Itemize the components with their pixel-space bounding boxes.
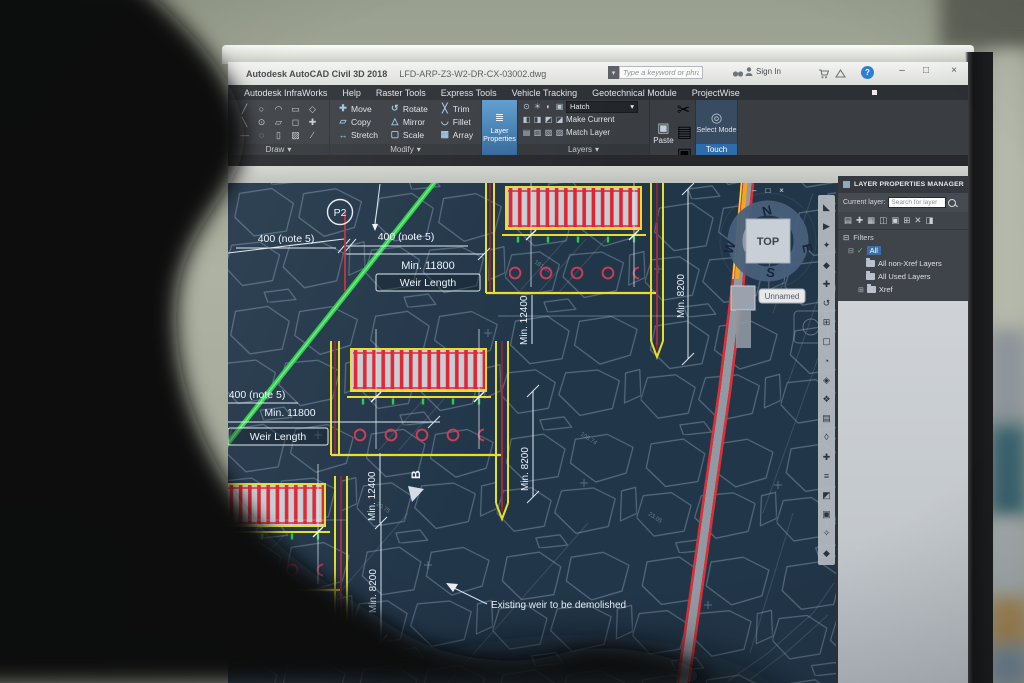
draw-tool-icon[interactable]: ⊙	[253, 116, 270, 129]
menu-item[interactable]: Raster Tools	[376, 88, 426, 98]
touch-panel-label: Touch	[696, 144, 737, 155]
chevron-down-icon: ▾	[287, 145, 291, 154]
layer-tool-icon[interactable]: ◩	[544, 115, 553, 124]
select-mode-label: Select Mode	[697, 126, 737, 134]
draw-tool-icon[interactable]: ╲	[236, 116, 253, 129]
svg-text:400 (note 5): 400 (note 5)	[258, 233, 315, 245]
paste-label: Paste	[653, 136, 673, 145]
layer-search-input[interactable]	[888, 197, 946, 208]
clipboard-tool-icon[interactable]: ✂	[677, 100, 692, 120]
keyword-search-input[interactable]	[619, 66, 703, 79]
draw-tool-icon[interactable]: ○	[253, 103, 270, 116]
svg-text:400 (note 5): 400 (note 5)	[229, 389, 286, 401]
layers-stack-icon: ≣	[495, 112, 504, 125]
title-bar: Autodesk AutoCAD Civil 3D 2018 LFD-ARP-Z…	[228, 62, 968, 85]
background-blur	[988, 424, 1024, 520]
layer-state-icon[interactable]: ☀	[533, 102, 542, 111]
tool-label: Trim	[453, 104, 470, 114]
layer-tool-icon[interactable]: ▨	[555, 128, 564, 137]
ribbon-tool-button[interactable]: ▦Array	[440, 128, 481, 141]
navbar-icon[interactable]: ≡	[824, 467, 829, 486]
layer-tool-icon[interactable]: ◪	[555, 115, 564, 124]
layer-tool-icon[interactable]: ▤	[522, 128, 531, 137]
navbar-icon[interactable]: ◊	[824, 428, 828, 447]
ribbon-tool-button[interactable]: ▱Copy	[338, 115, 386, 128]
folder-icon	[866, 260, 875, 267]
svg-text:P2: P2	[334, 207, 347, 219]
svg-text:Min. 8200: Min. 8200	[368, 569, 379, 613]
filter-tree-row: ⊟ ✓ All	[838, 244, 968, 257]
background-blur	[988, 646, 1024, 683]
tool-label: Rotate	[403, 104, 428, 114]
navbar-icon[interactable]: ◩	[822, 486, 831, 505]
layer-state-icon[interactable]: ▣	[555, 102, 564, 111]
draw-tool-icon[interactable]: ▭	[287, 103, 304, 116]
monitor-right-bezel	[965, 52, 993, 683]
layer-tool-icon[interactable]: ◧	[522, 115, 531, 124]
svg-text:Weir Length: Weir Length	[400, 277, 457, 289]
layer-state-icon[interactable]: ◐	[544, 102, 553, 111]
filter-tree-row: All Used Layers	[838, 270, 968, 283]
tool-icon: ╳	[440, 103, 450, 114]
svg-text:Min. 12400: Min. 12400	[367, 471, 378, 521]
tool-icon: ↔	[338, 130, 348, 140]
palette-toolbar-icon[interactable]: ▤	[844, 215, 852, 226]
viewcube-top-face[interactable]: TOP	[757, 236, 779, 248]
ribbon-panel-modify: ✚Move▱Copy↔Stretch↺Rotate△Mirror▢Scale╳T…	[330, 100, 482, 155]
search-icon[interactable]	[948, 199, 956, 207]
svg-text:Weir Length: Weir Length	[250, 431, 307, 443]
make-current-button[interactable]: Make Current	[566, 115, 614, 124]
tool-icon: ◡	[440, 116, 450, 127]
menu-bar: Autodesk InfraWorksHelpRaster ToolsExpre…	[228, 85, 968, 100]
draw-tool-icon[interactable]: ✚	[304, 116, 321, 129]
svg-text:Existing weir to be demolished: Existing weir to be demolished	[491, 600, 626, 611]
navbar-icon[interactable]: ▣	[822, 505, 831, 524]
viewport-close-icon[interactable]: ×	[779, 186, 784, 195]
ribbon-tool-button[interactable]: ▢Scale	[390, 128, 436, 141]
draw-tool-icon[interactable]: ▯	[270, 129, 287, 142]
ribbon-tool-button[interactable]: ↔Stretch	[338, 128, 386, 141]
filters-label: Filters	[853, 233, 873, 242]
tool-label: Stretch	[351, 130, 378, 140]
expand-icon[interactable]: ⊞	[858, 286, 864, 294]
collapse-icon[interactable]: ⊟	[843, 233, 849, 242]
modify-panel-label[interactable]: Modify▾	[330, 144, 481, 155]
sign-in-label: Sign In	[756, 67, 781, 76]
paste-icon: ▣	[657, 120, 669, 136]
layer-dropdown[interactable]: Hatch▾	[566, 101, 638, 113]
tree-item-all[interactable]: All	[867, 246, 881, 255]
ucs-unnamed-label: Unnamed	[759, 289, 805, 303]
layers-panel-label[interactable]: Layers▾	[518, 144, 649, 155]
ribbon-panel-clipboard: ▣ Paste ✂▤▣ Clipboard	[650, 100, 696, 155]
background-blur	[988, 598, 1024, 650]
restore-button[interactable]: □	[916, 65, 936, 76]
draw-tool-icon[interactable]: ▨	[287, 129, 304, 142]
close-button[interactable]: ×	[944, 65, 964, 76]
navbar-icon[interactable]: ◈	[823, 371, 830, 390]
share-icon[interactable]	[833, 67, 847, 80]
navbar-icon[interactable]: ✚	[823, 448, 831, 467]
palette-toolbar-icon[interactable]: ◫	[879, 215, 887, 226]
ribbon-tool-button[interactable]: ✚Move	[338, 102, 386, 115]
navbar-icon[interactable]: ↺	[823, 294, 831, 313]
menu-item[interactable]: Express Tools	[441, 88, 497, 98]
ribbon-tool-button[interactable]: ↺Rotate	[390, 102, 436, 115]
navbar-icon[interactable]: ◆	[823, 256, 830, 275]
palette-grip-icon	[843, 181, 850, 188]
autocad-window: Autodesk AutoCAD Civil 3D 2018 LFD-ARP-Z…	[228, 62, 968, 683]
background-blur	[988, 52, 1024, 332]
navbar-icon[interactable]: ◣	[823, 198, 830, 217]
layer-tool-icon[interactable]: ▥	[533, 128, 542, 137]
document-name: LFD-ARP-Z3-W2-DR-CX-03002.dwg	[399, 69, 546, 79]
photo-stage: Autodesk AutoCAD Civil 3D 2018 LFD-ARP-Z…	[0, 0, 1024, 683]
person-icon	[745, 67, 753, 76]
tool-icon: ▦	[440, 129, 450, 140]
chevron-down-icon: ▾	[630, 102, 634, 111]
svg-text:400 (note 5): 400 (note 5)	[378, 231, 435, 243]
navbar-icon[interactable]: ⊞	[823, 313, 831, 332]
menu-item[interactable]: Autodesk InfraWorks	[244, 88, 327, 98]
tool-icon: ▢	[390, 129, 400, 140]
chevron-down-icon: ▾	[595, 145, 599, 154]
chevron-down-icon: ▾	[417, 145, 421, 154]
collapse-icon[interactable]: ⊟	[848, 247, 854, 255]
draw-tool-icon[interactable]: ╱	[236, 103, 253, 116]
app-title: Autodesk AutoCAD Civil 3D 2018	[246, 69, 387, 79]
tool-label: Scale	[403, 130, 424, 140]
menu-item[interactable]: Help	[342, 88, 361, 98]
layer-list-area[interactable]	[838, 301, 968, 683]
draw-tool-icon[interactable]: ∕	[304, 129, 321, 142]
cart-icon[interactable]	[816, 67, 830, 80]
tool-label: Mirror	[403, 117, 425, 127]
folder-icon	[867, 286, 876, 293]
menu-item[interactable]: ProjectWise	[692, 88, 740, 98]
layer-properties-manager-panel: LAYER PROPERTIES MANAGER Current layer: …	[838, 176, 968, 683]
navbar-icon[interactable]: ❖	[822, 390, 830, 409]
tree-item-non-xref[interactable]: All non-Xref Layers	[878, 259, 942, 268]
help-search: ▾	[608, 66, 703, 79]
minimize-button[interactable]: –	[892, 65, 912, 76]
svg-text:B: B	[409, 470, 423, 479]
menu-item[interactable]: Vehicle Tracking	[512, 88, 578, 98]
folder-icon	[866, 273, 875, 280]
navbar-icon[interactable]: ◔	[824, 352, 829, 371]
filter-tree-row: All non-Xref Layers	[838, 257, 968, 270]
navigation-bar: ◣▶✦◆✚↺⊞▢◔◈❖▤◊✚≡◩▣✧◆	[818, 195, 835, 565]
ribbon-panel-touch: ◎ Select Mode Touch	[696, 100, 738, 155]
help-icon[interactable]: ?	[861, 66, 874, 79]
palette-toolbar-icon[interactable]: ▣	[891, 215, 899, 226]
layer-tool-icon[interactable]: ▧	[544, 128, 553, 137]
current-layer-label: Current layer:	[843, 199, 885, 206]
layer-properties-button[interactable]: ≣ Layer Properties	[482, 100, 518, 155]
sign-in-button[interactable]: Sign In	[745, 67, 781, 76]
palette-toolbar-icon[interactable]: ✚	[856, 215, 863, 226]
background-blur	[988, 330, 1024, 426]
palette-title: LAYER PROPERTIES MANAGER	[854, 181, 964, 188]
tree-item-all-used[interactable]: All Used Layers	[878, 272, 931, 281]
filter-tree-row: ⊞ Xref	[838, 283, 968, 296]
draw-tool-icon[interactable]: ◇	[304, 103, 321, 116]
navbar-icon[interactable]: ✧	[823, 524, 831, 543]
background-blur	[988, 518, 1024, 602]
navbar-icon[interactable]: ✦	[823, 236, 831, 255]
navbar-icon[interactable]: ▤	[822, 409, 831, 428]
draw-tool-icon[interactable]: ▱	[270, 116, 287, 129]
file-tab-strip[interactable]	[228, 155, 968, 166]
svg-text:Min. 8200: Min. 8200	[676, 274, 687, 318]
menu-item[interactable]: Geotechnical Module	[592, 88, 677, 98]
svg-text:Min. 11800: Min. 11800	[264, 407, 315, 419]
tool-icon: △	[390, 116, 400, 127]
draw-tool-icon[interactable]: —	[236, 129, 253, 142]
palette-toolbar-icon[interactable]: ▦	[867, 215, 875, 226]
ribbon: ╱○◠▭◇╲⊙▱◻✚—◌▯▨∕ Draw▾ ✚Move▱Copy↔Stretch…	[228, 100, 968, 155]
tool-label: Fillet	[453, 117, 471, 127]
background-blur	[940, 0, 1024, 50]
svg-text:Min. 11800: Min. 11800	[401, 260, 455, 272]
palette-toolbar-icon[interactable]: ✕	[914, 215, 921, 226]
palette-toolbar-icon[interactable]: ⊞	[903, 215, 910, 226]
navbar-icon[interactable]: ▢	[822, 332, 831, 351]
tool-icon: ✚	[338, 103, 348, 114]
navbar-icon[interactable]: ▶	[823, 217, 830, 236]
ribbon-panel-layers: ⊙☀◐▣ Hatch▾ ◧◨◩◪ Make Current ▤▥▧▨ Match…	[518, 100, 650, 155]
draw-tool-icon[interactable]: ◠	[270, 103, 287, 116]
ribbon-panel-draw: ╱○◠▭◇╲⊙▱◻✚—◌▯▨∕ Draw▾	[228, 100, 330, 155]
binoculars-search-icon[interactable]	[731, 67, 745, 80]
navbar-icon[interactable]: ◆	[823, 544, 830, 563]
tool-label: Copy	[351, 117, 371, 127]
ribbon-tool-button[interactable]: △Mirror	[390, 115, 436, 128]
check-icon: ✓	[857, 246, 864, 255]
layer-tool-icon[interactable]: ◨	[533, 115, 542, 124]
drawing-svg[interactable]: 181.61 105.74 20.75 23.05	[228, 183, 836, 683]
palette-toolbar-icon[interactable]: ◨	[926, 215, 934, 226]
svg-text:Min. 12400: Min. 12400	[519, 295, 530, 345]
tree-item-xref[interactable]: Xref	[879, 285, 893, 294]
layer-state-icon[interactable]: ⊙	[522, 102, 531, 111]
svg-text:Min. 8200: Min. 8200	[520, 447, 531, 491]
draw-panel-label[interactable]: Draw▾	[228, 144, 329, 155]
clipboard-tool-icon[interactable]: ▤	[677, 122, 692, 142]
draw-tool-icon[interactable]: ◌	[253, 129, 270, 142]
layer-properties-label: Layer Properties	[482, 127, 517, 144]
palette-titlebar[interactable]: LAYER PROPERTIES MANAGER	[838, 176, 968, 193]
tool-label: Move	[351, 104, 372, 114]
select-mode-button[interactable]: ◎ Select Mode	[696, 100, 737, 144]
tool-label: Array	[453, 130, 473, 140]
navbar-icon[interactable]: ✚	[823, 275, 831, 294]
viewport-restore-icon[interactable]: □	[765, 186, 770, 195]
search-category-dropdown-icon[interactable]: ▾	[608, 66, 619, 79]
crosshair-icon: ◎	[711, 110, 722, 126]
match-layer-button[interactable]: Match Layer	[566, 128, 610, 137]
viewport-window-controls: – □ ×	[752, 186, 784, 195]
draw-tool-icon[interactable]: ◻	[287, 116, 304, 129]
palette-toolbar: ▤✚▦◫▣⊞✕◨	[838, 212, 968, 230]
ribbon-tool-button[interactable]: ◡Fillet	[440, 115, 481, 128]
filters-row: ⊟ Filters	[838, 230, 968, 244]
tool-icon: ▱	[338, 116, 348, 127]
drawing-canvas[interactable]: 181.61 105.74 20.75 23.05	[228, 183, 836, 683]
ribbon-tool-button[interactable]: ╳Trim	[440, 102, 481, 115]
current-layer-row: Current layer:	[838, 193, 968, 212]
tool-icon: ↺	[390, 103, 400, 114]
svg-text:Unnamed: Unnamed	[765, 292, 800, 301]
viewport-minimize-icon[interactable]: –	[752, 186, 756, 195]
